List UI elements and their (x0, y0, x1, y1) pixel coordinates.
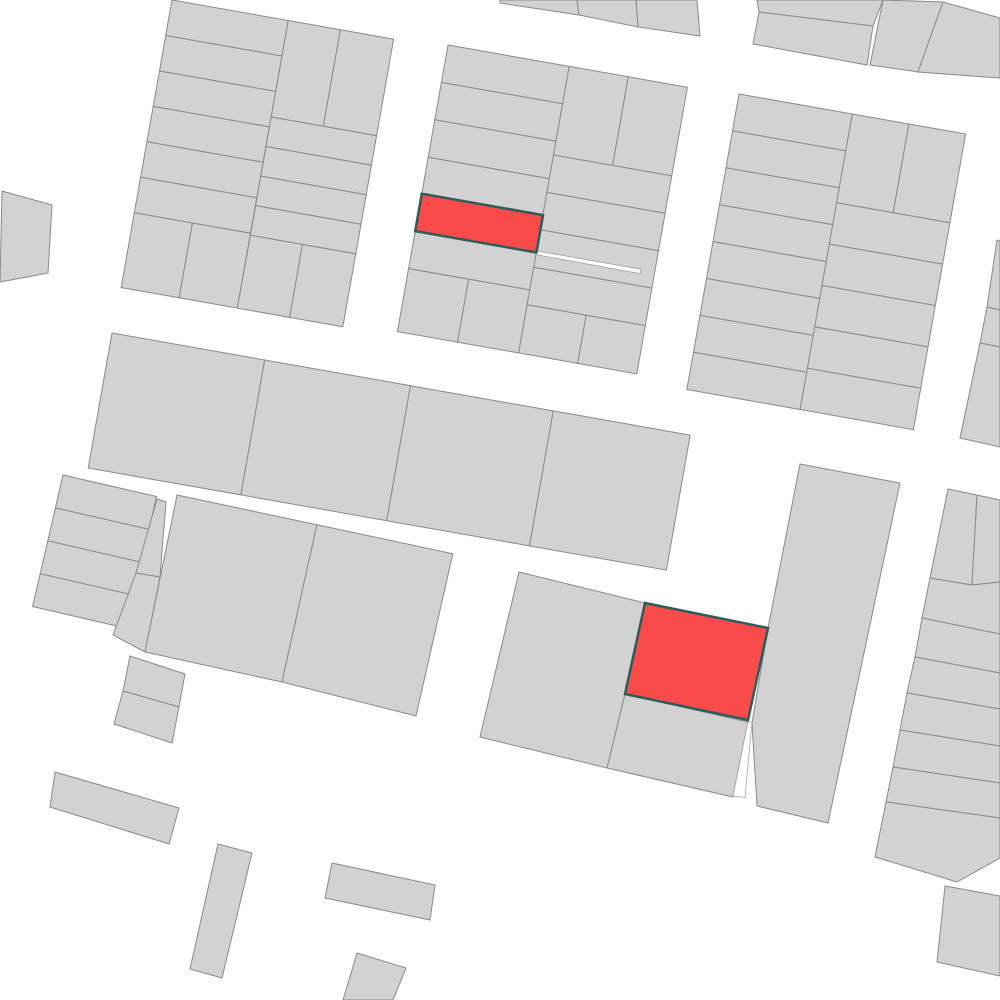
parcel[interactable] (500, 0, 579, 15)
parcel[interactable] (530, 411, 691, 570)
parcel[interactable] (519, 305, 587, 364)
map-viewport (0, 0, 1000, 1000)
parcel[interactable] (930, 489, 977, 585)
parcel[interactable] (50, 772, 179, 844)
parcel[interactable] (458, 279, 530, 353)
parcel[interactable] (960, 343, 1000, 447)
parcel[interactable] (343, 953, 406, 1000)
parcel[interactable] (0, 191, 52, 282)
parcel[interactable] (972, 495, 1000, 585)
parcel[interactable] (190, 844, 252, 978)
parcel[interactable] (578, 315, 646, 374)
parcel[interactable] (577, 0, 638, 27)
parcel[interactable] (980, 307, 1000, 347)
parcel[interactable] (636, 0, 700, 36)
parcel[interactable] (387, 386, 554, 546)
parcel[interactable] (752, 464, 900, 823)
parcel-map-canvas[interactable] (0, 0, 1000, 1000)
parcel[interactable] (325, 863, 435, 920)
parcel[interactable] (987, 240, 1000, 310)
parcel[interactable] (88, 333, 265, 495)
parcel[interactable] (241, 360, 411, 521)
parcel[interactable] (937, 886, 1000, 976)
parcel[interactable] (397, 269, 468, 343)
